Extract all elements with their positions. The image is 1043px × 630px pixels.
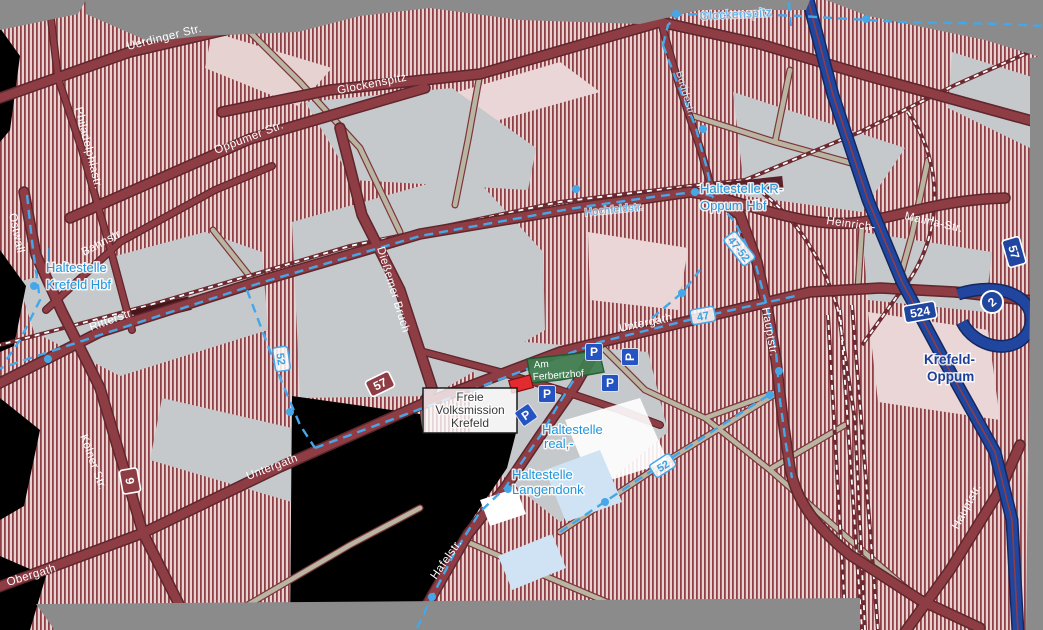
parking-letter: P (543, 387, 551, 401)
map-svg[interactable]: Am Ferbertzhof Freie Volksmission Krefel… (0, 0, 1043, 630)
stop-label-real-line2[interactable]: real,- (544, 436, 574, 451)
stop-label-oppum-line2[interactable]: Oppum Hbf (700, 198, 767, 213)
volksmission-line1: Freie (456, 390, 484, 404)
stop-label-krefeld-hbf-line2[interactable]: Krefeld Hbf (46, 277, 111, 292)
parking-letter: P (623, 353, 637, 361)
volksmission-info-box[interactable]: Freie Volksmission Krefeld (423, 388, 517, 433)
exit-label-krefeld-oppum-line2: Oppum (927, 369, 974, 384)
city-map-canvas[interactable]: Am Ferbertzhof Freie Volksmission Krefel… (0, 0, 1043, 630)
motorway-junction-symbol: 2 (981, 291, 1003, 313)
route-badge-52-west: 52 (272, 346, 290, 372)
parking-letter: P (590, 345, 598, 359)
stop-label-langendonk-line2[interactable]: Langendonk (512, 482, 584, 497)
parking-icon[interactable]: P (622, 349, 639, 366)
green-area-label-line1: Am (533, 359, 549, 371)
parking-letter: P (606, 376, 614, 390)
volksmission-line3: Krefeld (451, 416, 489, 430)
svg-text:47: 47 (696, 310, 710, 324)
exit-label-krefeld-oppum-line1: Krefeld- (924, 352, 975, 367)
stop-label-langendonk-line1[interactable]: Haltestelle (512, 467, 573, 482)
stop-label-krefeld-hbf-line1[interactable]: Haltestelle (46, 260, 107, 275)
parking-icon[interactable]: P (602, 375, 619, 392)
stop-label-oppum-line1[interactable]: HaltestelleKR- (700, 181, 783, 196)
svg-text:52: 52 (273, 352, 287, 366)
route-badge-47: 47 (690, 306, 716, 325)
parking-icon[interactable]: P (586, 344, 603, 361)
shield-b9: 9 (119, 468, 141, 495)
parking-icon[interactable]: P (539, 386, 556, 403)
stop-label-real-line1[interactable]: Haltestelle (542, 422, 603, 437)
volksmission-line2: Volksmission (435, 403, 504, 417)
